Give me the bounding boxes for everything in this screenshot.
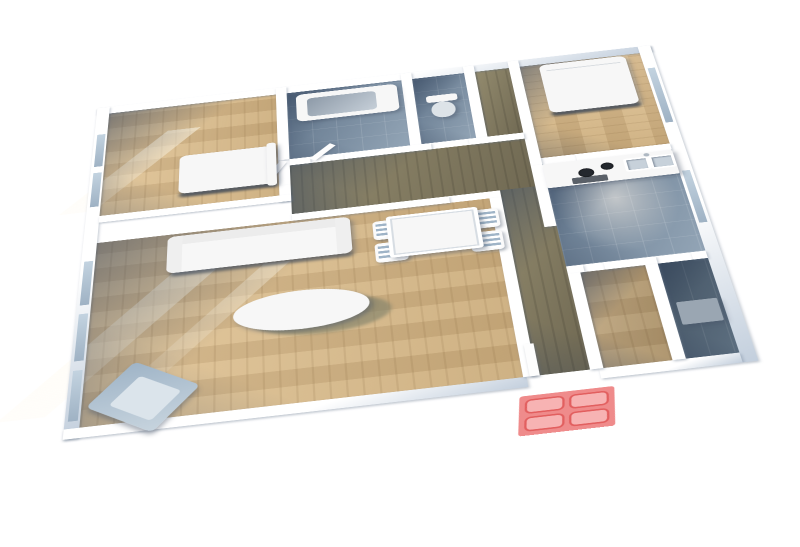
doormat-cell [569, 390, 609, 409]
doormat-cell [525, 395, 565, 414]
doormat [518, 386, 615, 437]
bed-headboard [266, 142, 277, 186]
sofa-armrest [335, 217, 353, 255]
doormat-cell [569, 408, 609, 427]
double-bed [539, 56, 640, 113]
washing-machine [676, 298, 724, 325]
apartment-floor-plan [63, 45, 759, 440]
doormat-cell [524, 413, 564, 432]
floor-plan-scene [50, 0, 729, 533]
sofa-armrest [166, 236, 182, 274]
